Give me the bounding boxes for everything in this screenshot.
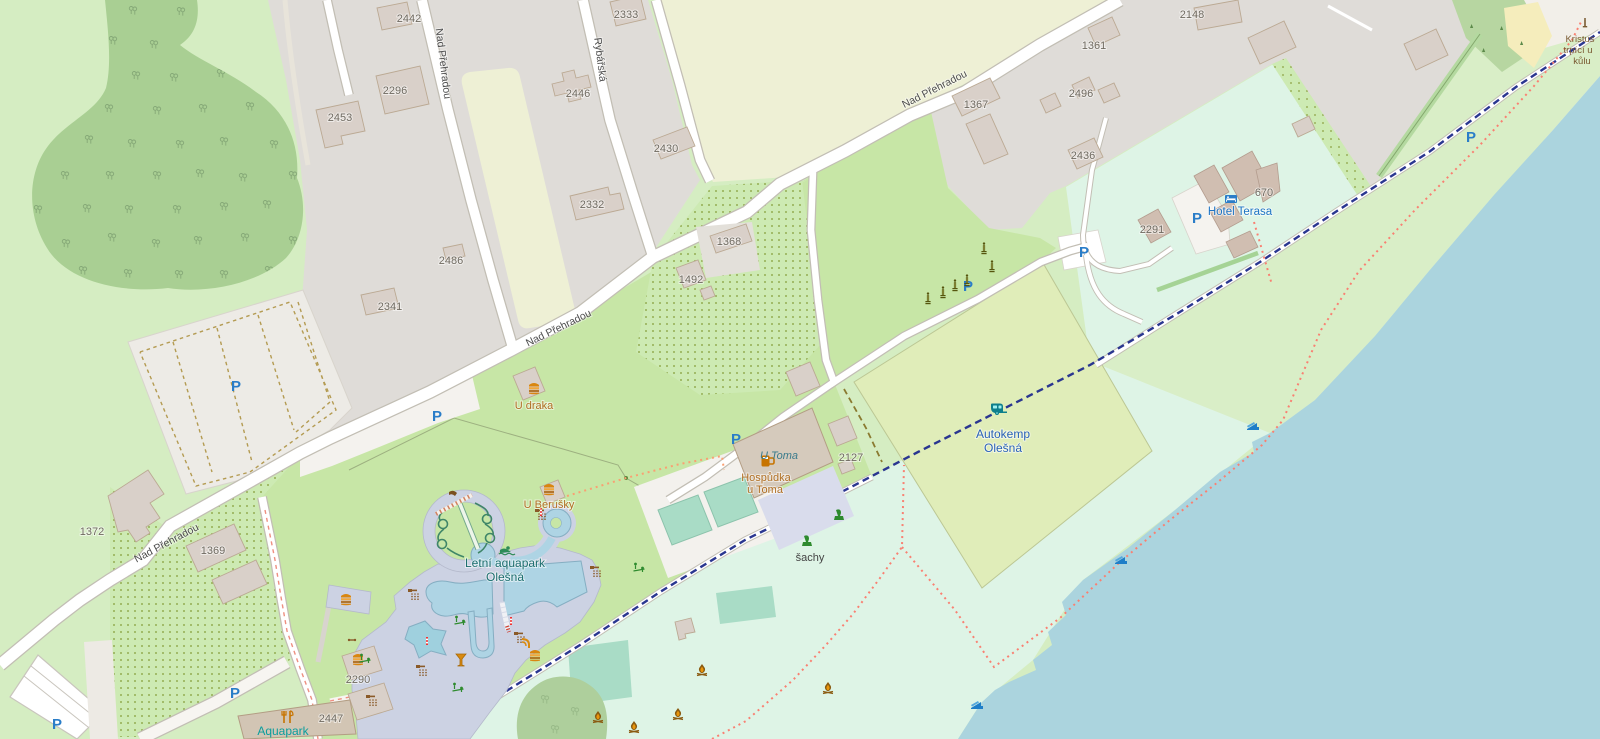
svg-text:P: P xyxy=(1079,244,1089,261)
svg-text:2446: 2446 xyxy=(566,88,590,100)
svg-text:2430: 2430 xyxy=(654,143,678,155)
svg-text:Aquapark: Aquapark xyxy=(257,724,309,738)
svg-text:2436: 2436 xyxy=(1071,150,1095,162)
svg-text:Autokemp: Autokemp xyxy=(976,427,1030,441)
svg-text:šachy: šachy xyxy=(796,552,825,564)
svg-text:2447: 2447 xyxy=(319,713,343,725)
svg-text:U Berušky: U Berušky xyxy=(524,499,575,511)
svg-text:kůlu: kůlu xyxy=(1573,56,1590,67)
svg-text:1361: 1361 xyxy=(1082,40,1106,52)
svg-text:u Toma: u Toma xyxy=(747,484,784,496)
svg-text:Letní aquapark: Letní aquapark xyxy=(465,556,546,570)
svg-text:2333: 2333 xyxy=(614,9,638,21)
svg-text:1492: 1492 xyxy=(679,274,703,286)
svg-text:P: P xyxy=(52,716,62,733)
svg-text:Hotel Terasa: Hotel Terasa xyxy=(1208,206,1273,218)
svg-text:2332: 2332 xyxy=(580,199,604,211)
svg-text:1368: 1368 xyxy=(717,236,741,248)
svg-text:1372: 1372 xyxy=(80,526,104,538)
svg-text:Olešná: Olešná xyxy=(984,441,1022,455)
svg-text:P: P xyxy=(1192,210,1202,227)
svg-text:U Toma: U Toma xyxy=(760,450,798,462)
svg-text:2496: 2496 xyxy=(1069,88,1093,100)
svg-text:670: 670 xyxy=(1255,187,1273,199)
svg-text:2442: 2442 xyxy=(397,13,421,25)
svg-text:Olešná: Olešná xyxy=(486,570,524,584)
svg-text:P: P xyxy=(432,408,442,425)
svg-text:U draka: U draka xyxy=(515,400,554,412)
svg-text:Hospůdka: Hospůdka xyxy=(741,472,791,484)
svg-text:2453: 2453 xyxy=(328,112,352,124)
svg-text:2290: 2290 xyxy=(346,674,370,686)
svg-text:2341: 2341 xyxy=(378,301,402,313)
svg-text:P: P xyxy=(1466,129,1476,146)
svg-text:2127: 2127 xyxy=(839,452,863,464)
svg-text:1369: 1369 xyxy=(201,545,225,557)
svg-text:Kristus: Kristus xyxy=(1565,34,1594,45)
svg-text:2486: 2486 xyxy=(439,255,463,267)
svg-text:P: P xyxy=(231,378,241,395)
svg-text:2296: 2296 xyxy=(383,85,407,97)
svg-text:2148: 2148 xyxy=(1180,9,1204,21)
svg-text:2291: 2291 xyxy=(1140,224,1164,236)
svg-text:trpící u: trpící u xyxy=(1563,45,1592,56)
svg-text:1367: 1367 xyxy=(964,99,988,111)
svg-text:P: P xyxy=(230,685,240,702)
svg-text:P: P xyxy=(731,431,741,448)
